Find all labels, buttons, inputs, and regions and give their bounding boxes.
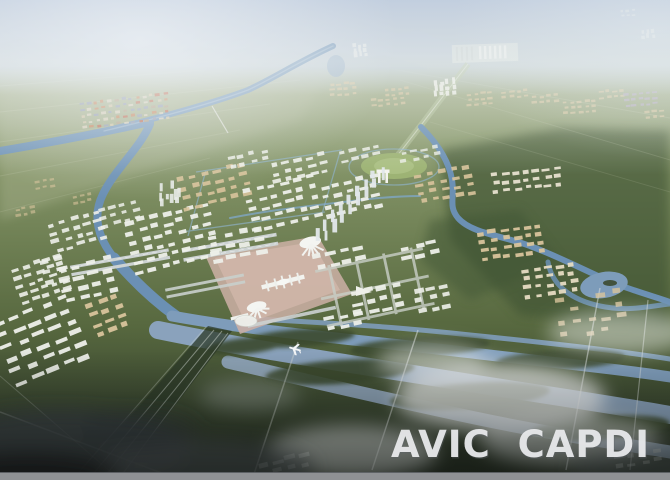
building bbox=[535, 232, 542, 237]
building bbox=[526, 185, 531, 189]
building bbox=[555, 183, 561, 187]
rendering-canvas: AVIC CAPDI AVIC CAPDI bbox=[0, 0, 670, 480]
building bbox=[492, 190, 498, 194]
building bbox=[503, 235, 510, 240]
cbd-tower bbox=[316, 228, 320, 241]
cbd-tower bbox=[348, 204, 352, 214]
building bbox=[539, 248, 545, 253]
cbd-tower bbox=[323, 220, 327, 232]
building bbox=[558, 271, 564, 276]
watermark-text: AVIC CAPDI bbox=[391, 423, 650, 466]
building bbox=[567, 262, 573, 267]
building bbox=[615, 301, 622, 307]
building bbox=[525, 233, 531, 237]
bottom-bar bbox=[0, 473, 670, 480]
building bbox=[572, 287, 578, 292]
building bbox=[523, 178, 528, 182]
building bbox=[567, 271, 574, 276]
circular-pad bbox=[235, 316, 257, 327]
cbd-tower bbox=[340, 212, 344, 223]
building bbox=[493, 180, 500, 184]
building bbox=[523, 276, 530, 281]
building bbox=[524, 295, 530, 300]
building bbox=[612, 288, 620, 294]
cbd-tower bbox=[339, 202, 343, 213]
cbd-tower bbox=[331, 210, 334, 223]
cbd-tower bbox=[325, 231, 328, 241]
aerial-rendering: AVIC CAPDI AVIC CAPDI bbox=[0, 0, 670, 480]
